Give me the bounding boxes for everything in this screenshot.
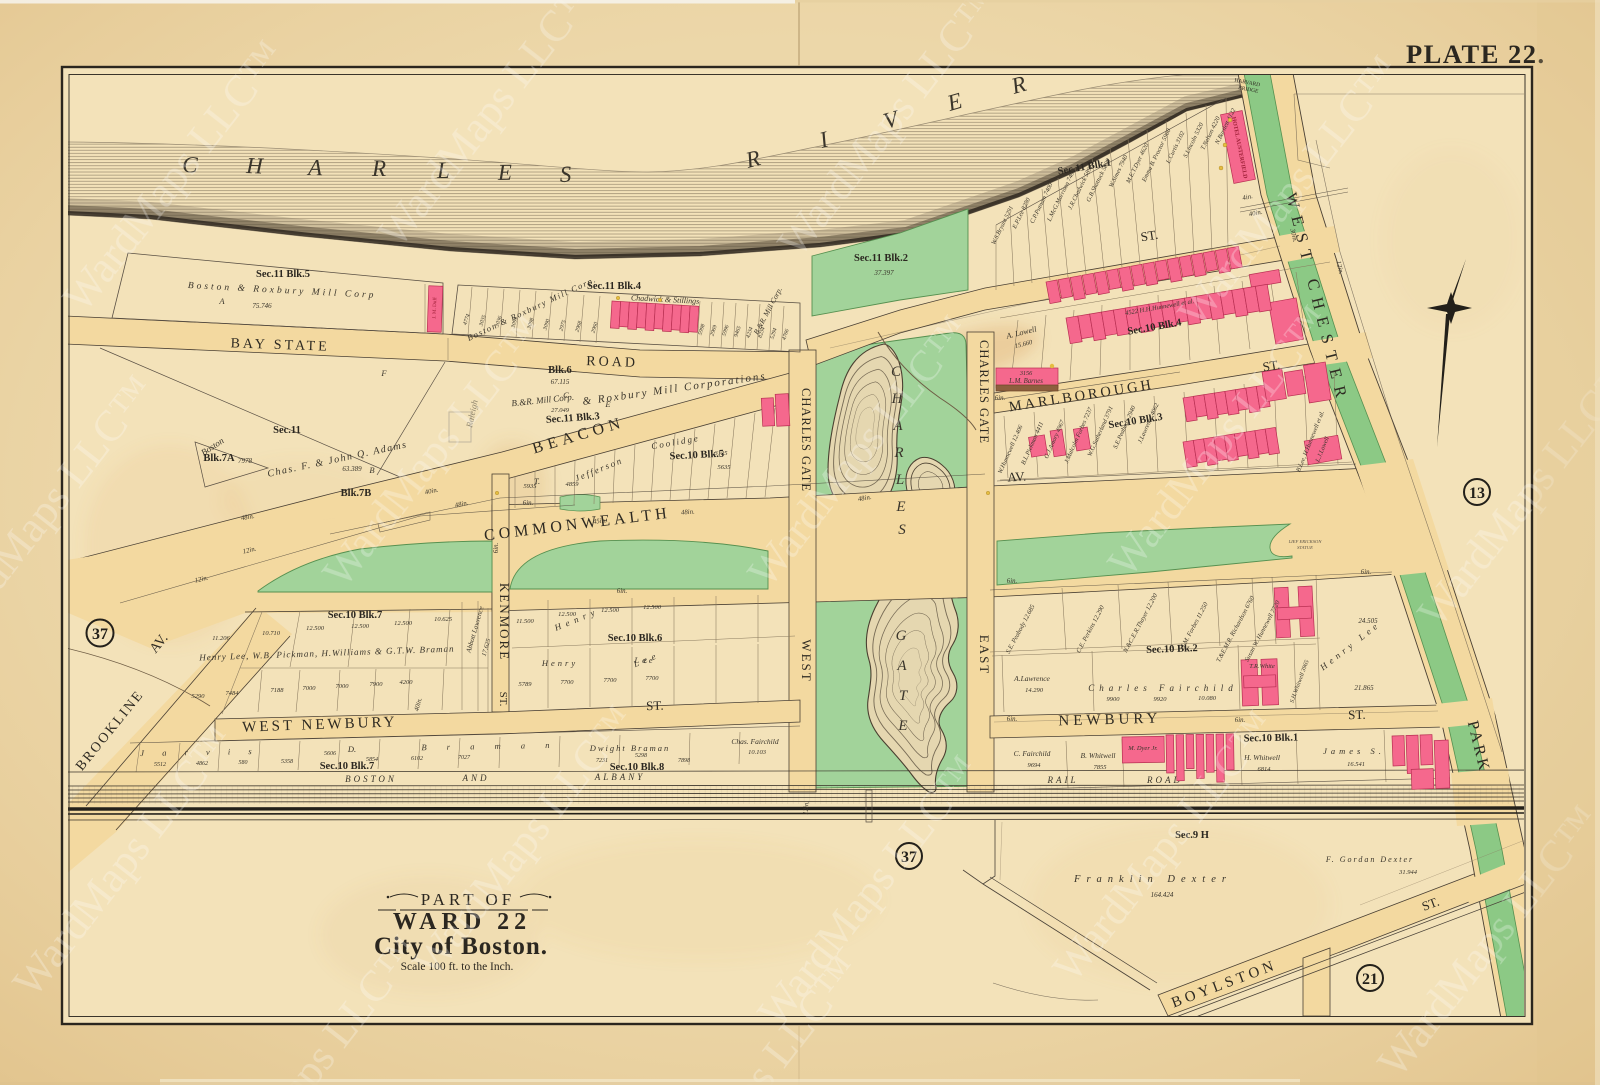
svg-text:LIEF ERICKSON: LIEF ERICKSON (1288, 539, 1323, 544)
svg-text:ST.: ST. (1139, 227, 1159, 245)
svg-text:13: 13 (1469, 485, 1485, 502)
svg-text:7855: 7855 (1094, 764, 1108, 771)
svg-text:WEST: WEST (799, 639, 814, 682)
svg-text:R: R (893, 445, 903, 461)
svg-text:6in.: 6in. (617, 588, 628, 595)
svg-text:16.541: 16.541 (1347, 761, 1365, 768)
svg-text:5290: 5290 (192, 693, 206, 700)
svg-text:7188: 7188 (271, 687, 285, 694)
svg-text:5512: 5512 (154, 762, 166, 768)
svg-text:STATUE: STATUE (1297, 545, 1313, 550)
svg-text:Sec.10 Blk.6: Sec.10 Blk.6 (608, 633, 663, 644)
svg-text:11.500: 11.500 (516, 618, 534, 625)
svg-text:6in.: 6in. (523, 500, 534, 507)
svg-text:4200: 4200 (400, 679, 414, 686)
svg-text:12.500: 12.500 (306, 625, 325, 632)
svg-text:45in.: 45in. (593, 517, 608, 525)
svg-text:5358: 5358 (281, 759, 293, 765)
svg-text:R: R (371, 156, 386, 181)
svg-text:Sec.11 Blk.5: Sec.11 Blk.5 (256, 269, 310, 280)
svg-text:7978: 7978 (238, 457, 253, 465)
svg-text:9900: 9900 (1107, 696, 1121, 703)
svg-text:7000: 7000 (336, 683, 350, 690)
svg-text:75.746: 75.746 (252, 302, 272, 310)
svg-text:Sec.11: Sec.11 (273, 425, 301, 436)
svg-text:BOSTON: BOSTON (345, 774, 397, 784)
svg-text:S: S (559, 162, 572, 187)
svg-text:7898: 7898 (678, 758, 690, 764)
svg-text:12.500: 12.500 (601, 607, 620, 614)
svg-text:12.500: 12.500 (394, 620, 413, 627)
svg-text:31.944: 31.944 (1398, 869, 1418, 876)
svg-text:6in.: 6in. (1007, 716, 1018, 723)
svg-text:7000: 7000 (303, 685, 317, 692)
svg-text:E: E (897, 718, 907, 734)
svg-text:5854: 5854 (366, 756, 378, 763)
svg-text:6102: 6102 (411, 756, 423, 762)
svg-text:L.M. Barnes: L.M. Barnes (1008, 378, 1043, 385)
svg-text:9920: 9920 (1154, 696, 1168, 703)
svg-text:Sec.11 Blk.2: Sec.11 Blk.2 (854, 253, 908, 264)
svg-text:6in.: 6in. (995, 395, 1006, 402)
svg-text:James S.: James S. (1323, 746, 1385, 756)
svg-text:B. Whitwell: B. Whitwell (1081, 751, 1116, 760)
svg-text:NEWBURY: NEWBURY (1058, 711, 1161, 730)
svg-text:M. Dyer Jr.: M. Dyer Jr. (1127, 745, 1158, 752)
svg-text:48in.: 48in. (681, 509, 696, 517)
svg-text:EAST: EAST (977, 635, 992, 676)
svg-text:7700: 7700 (561, 679, 575, 686)
svg-text:7484: 7484 (226, 690, 240, 697)
svg-text:9694: 9694 (1028, 762, 1042, 769)
svg-text:Henry: Henry (541, 658, 578, 668)
svg-text:21: 21 (1362, 971, 1378, 988)
svg-text:F: F (380, 368, 387, 378)
svg-text:E: E (497, 160, 512, 185)
svg-text:KENMORE: KENMORE (497, 583, 512, 661)
svg-text:27.049: 27.049 (551, 407, 570, 414)
svg-text:G: G (896, 628, 907, 644)
svg-text:67.115: 67.115 (551, 378, 570, 386)
svg-text:6in.: 6in. (1361, 569, 1372, 576)
svg-text:4859: 4859 (566, 481, 580, 488)
svg-text:H: H (245, 153, 265, 179)
svg-text:580: 580 (239, 760, 248, 766)
svg-text:5935: 5935 (524, 483, 538, 490)
svg-text:Charles Fairchild: Charles Fairchild (1088, 683, 1237, 693)
svg-text:12.500: 12.500 (351, 623, 370, 630)
svg-text:Sec.10 Blk.8: Sec.10 Blk.8 (610, 762, 665, 773)
svg-text:ST.: ST. (497, 692, 509, 707)
svg-text:T.R.White: T.R.White (1249, 663, 1275, 670)
svg-text:ST.: ST. (646, 698, 664, 714)
svg-text:37: 37 (92, 626, 108, 643)
svg-text:7700: 7700 (604, 677, 618, 684)
svg-text:A: A (306, 155, 323, 180)
svg-text:PLATE 22.: PLATE 22. (1406, 39, 1546, 69)
svg-text:C: C (563, 390, 569, 400)
svg-text:7700: 7700 (646, 675, 660, 682)
svg-text:12.500: 12.500 (643, 604, 662, 611)
svg-text:5789: 5789 (519, 681, 533, 688)
svg-text:F. Gordan Dexter: F. Gordan Dexter (1325, 855, 1414, 864)
svg-text:AND: AND (462, 773, 490, 783)
svg-text:5635: 5635 (718, 464, 732, 471)
svg-text:Sec.10 Bk.2: Sec.10 Bk.2 (1146, 643, 1198, 656)
svg-text:L: L (895, 472, 904, 488)
svg-text:37.397: 37.397 (873, 269, 894, 277)
svg-text:J. M. Duff: J. M. Duff (431, 297, 439, 319)
svg-text:A: A (896, 658, 907, 674)
svg-text:12.500: 12.500 (558, 611, 577, 618)
svg-text:7027: 7027 (458, 755, 471, 761)
svg-text:AV.: AV. (1007, 469, 1026, 485)
svg-text:5606: 5606 (324, 751, 336, 757)
svg-text:Blk.6: Blk.6 (548, 365, 572, 376)
svg-text:A.Lawrence: A.Lawrence (1013, 674, 1050, 683)
svg-text:11.206: 11.206 (212, 635, 230, 642)
svg-text:Lee: Lee (633, 655, 655, 665)
svg-text:24.505: 24.505 (1358, 617, 1378, 625)
svg-text:5298: 5298 (635, 753, 647, 759)
svg-text:10.103: 10.103 (748, 749, 767, 756)
svg-text:6814: 6814 (1258, 766, 1272, 773)
svg-text:21.865: 21.865 (1354, 684, 1374, 692)
svg-text:D.: D. (347, 744, 356, 754)
svg-text:E: E (895, 499, 905, 515)
svg-text:ST.: ST. (1348, 707, 1366, 722)
svg-text:7900: 7900 (370, 681, 384, 688)
svg-text:Chas. Fairchild: Chas. Fairchild (731, 737, 778, 746)
svg-text:12in.: 12in. (802, 800, 810, 815)
svg-text:6in.: 6in. (1007, 578, 1018, 585)
svg-text:3125: 3125 (714, 450, 729, 457)
svg-text:10.625: 10.625 (434, 616, 453, 623)
svg-text:B: B (369, 465, 374, 475)
svg-text:14.290: 14.290 (1025, 687, 1044, 694)
svg-text:63.389: 63.389 (342, 465, 362, 473)
svg-text:RAIL: RAIL (1047, 775, 1079, 785)
svg-text:Sec.10 Blk.7: Sec.10 Blk.7 (328, 610, 383, 621)
svg-text:C. Fairchild: C. Fairchild (1014, 749, 1051, 758)
svg-text:10.710: 10.710 (262, 630, 281, 637)
svg-text:S: S (898, 522, 906, 538)
svg-text:3156: 3156 (1019, 370, 1033, 377)
svg-text:6in.: 6in. (493, 543, 500, 554)
svg-text:10.080: 10.080 (1198, 695, 1217, 702)
svg-text:A: A (218, 296, 225, 306)
svg-text:CHARLES GATE: CHARLES GATE (977, 340, 991, 444)
svg-text:ROAD: ROAD (586, 354, 638, 371)
